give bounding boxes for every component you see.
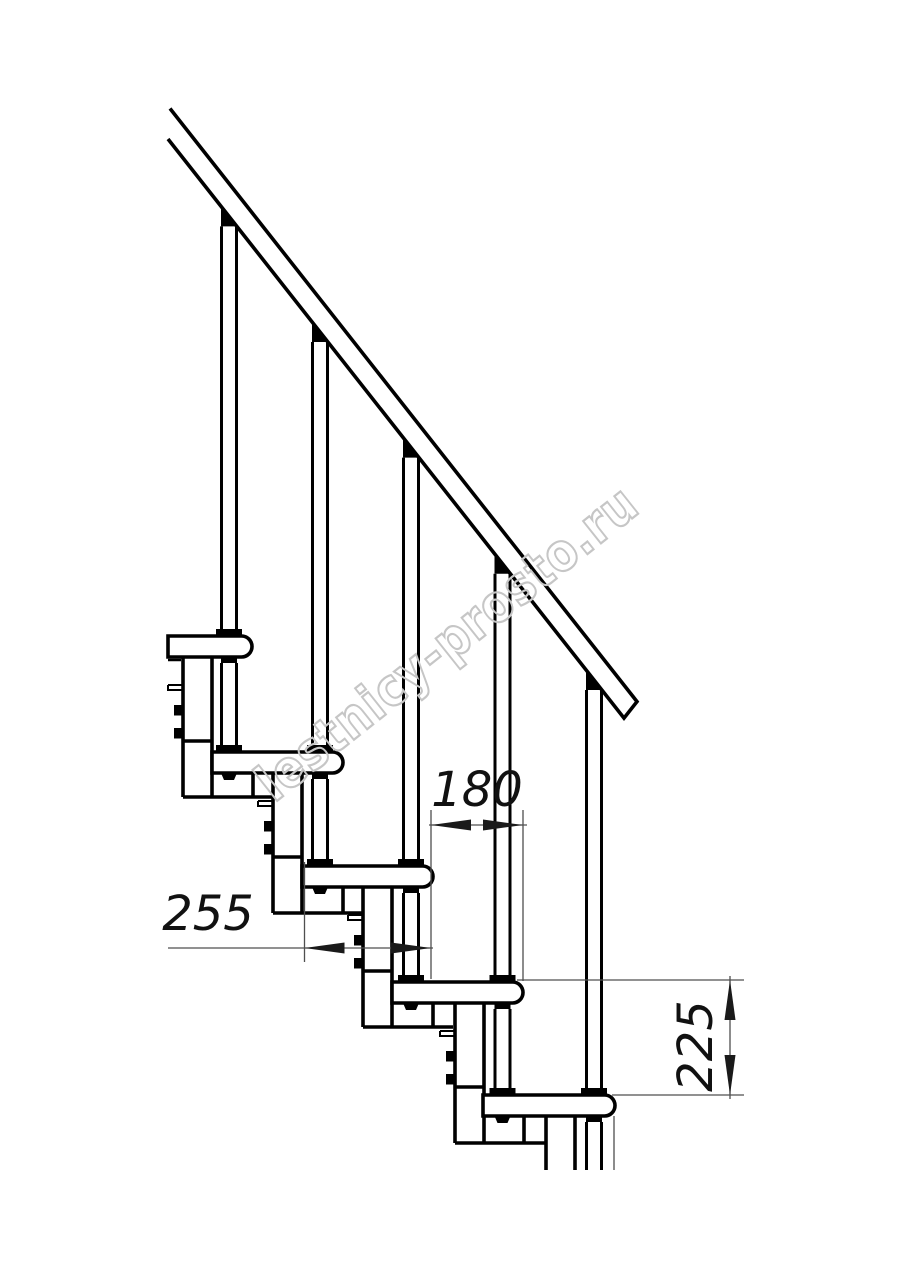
rod-tread-mount bbox=[398, 975, 424, 982]
bracket-stub bbox=[348, 915, 363, 920]
rod-tread-mount bbox=[307, 859, 333, 866]
connector-bolt bbox=[446, 1074, 455, 1085]
bracket-stub bbox=[258, 801, 273, 806]
rod-collar bbox=[221, 657, 237, 663]
connector-bolt bbox=[354, 935, 363, 946]
connector-bolt bbox=[174, 705, 183, 716]
rod-collar bbox=[495, 1003, 511, 1009]
staircase-technical-drawing: 180 255 225 lestnicy-prosto.ru bbox=[0, 0, 914, 1280]
dimension-arrow bbox=[305, 943, 345, 954]
rod-end-nut bbox=[403, 1003, 419, 1010]
dimension-label-rise: 225 bbox=[668, 1000, 724, 1092]
tread bbox=[302, 866, 433, 887]
dimension-label-tread-depth: 255 bbox=[162, 886, 254, 942]
connector-bolt bbox=[446, 1051, 455, 1062]
rod-tread-mount bbox=[490, 1088, 516, 1095]
baluster-tread-mount bbox=[398, 859, 424, 866]
dimension-arrow bbox=[725, 1055, 736, 1095]
dimension-arrow bbox=[391, 943, 431, 954]
baluster-tread-mount bbox=[490, 975, 516, 982]
tread bbox=[483, 1095, 615, 1116]
bracket-stub bbox=[168, 685, 183, 690]
rod-tread-mount bbox=[216, 745, 242, 752]
connector-bolt bbox=[264, 844, 273, 855]
dimension-arrow bbox=[431, 820, 471, 831]
dimension-label-going: 180 bbox=[431, 762, 523, 818]
baluster-tread-mount bbox=[581, 1088, 607, 1095]
tread bbox=[392, 982, 523, 1003]
connector-bolt bbox=[354, 958, 363, 969]
rod-end-nut bbox=[221, 773, 237, 780]
rod-collar bbox=[586, 1116, 602, 1122]
rod-end-nut bbox=[495, 1116, 511, 1123]
drawing-page: 180 255 225 lestnicy-prosto.ru bbox=[0, 0, 914, 1280]
baluster-tread-mount bbox=[216, 629, 242, 636]
dimension-arrow bbox=[725, 980, 736, 1020]
rod-collar bbox=[403, 887, 419, 893]
dimension-arrow bbox=[483, 820, 523, 831]
connector-bolt bbox=[174, 728, 183, 739]
rod-end-nut bbox=[312, 887, 328, 894]
bracket-stub bbox=[440, 1031, 455, 1036]
tread bbox=[168, 636, 252, 657]
connector-bolt bbox=[264, 821, 273, 832]
